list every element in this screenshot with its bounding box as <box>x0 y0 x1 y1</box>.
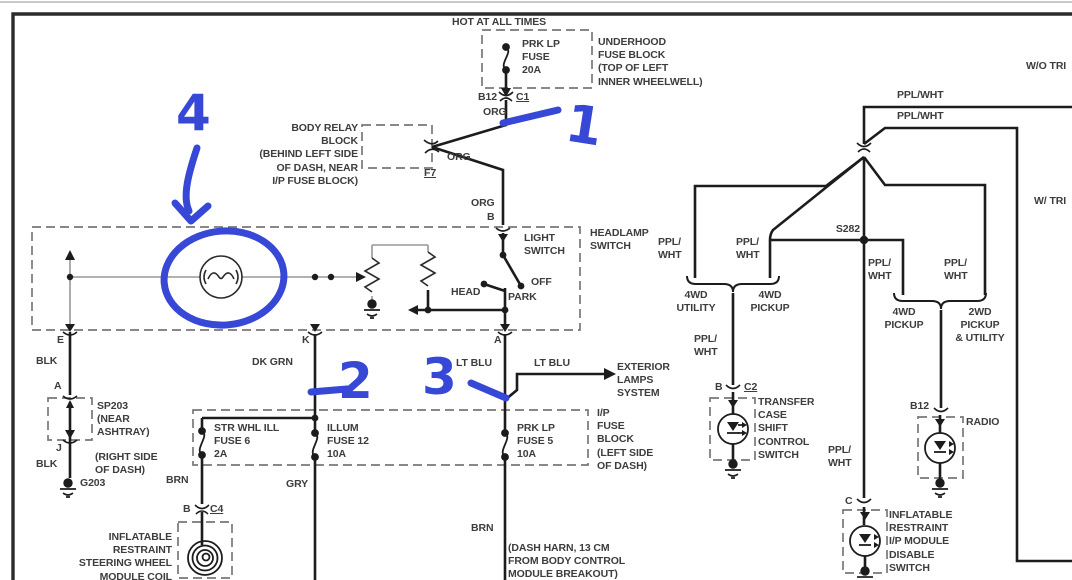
annotation-4-arrow-shaft <box>186 148 197 211</box>
wiring-diagram: HOT AT ALL TIMES PRK LP FUSE 20A UNDERHO… <box>0 0 1072 580</box>
annotation-number-2: 2 <box>338 356 373 406</box>
annotation-3-tick <box>471 383 506 398</box>
annotation-strokes-svg <box>0 0 1072 580</box>
annotation-1-tick <box>503 110 558 123</box>
annotation-number-4: 4 <box>176 88 211 138</box>
annotation-circle <box>160 226 288 330</box>
annotation-number-3: 3 <box>422 352 457 402</box>
